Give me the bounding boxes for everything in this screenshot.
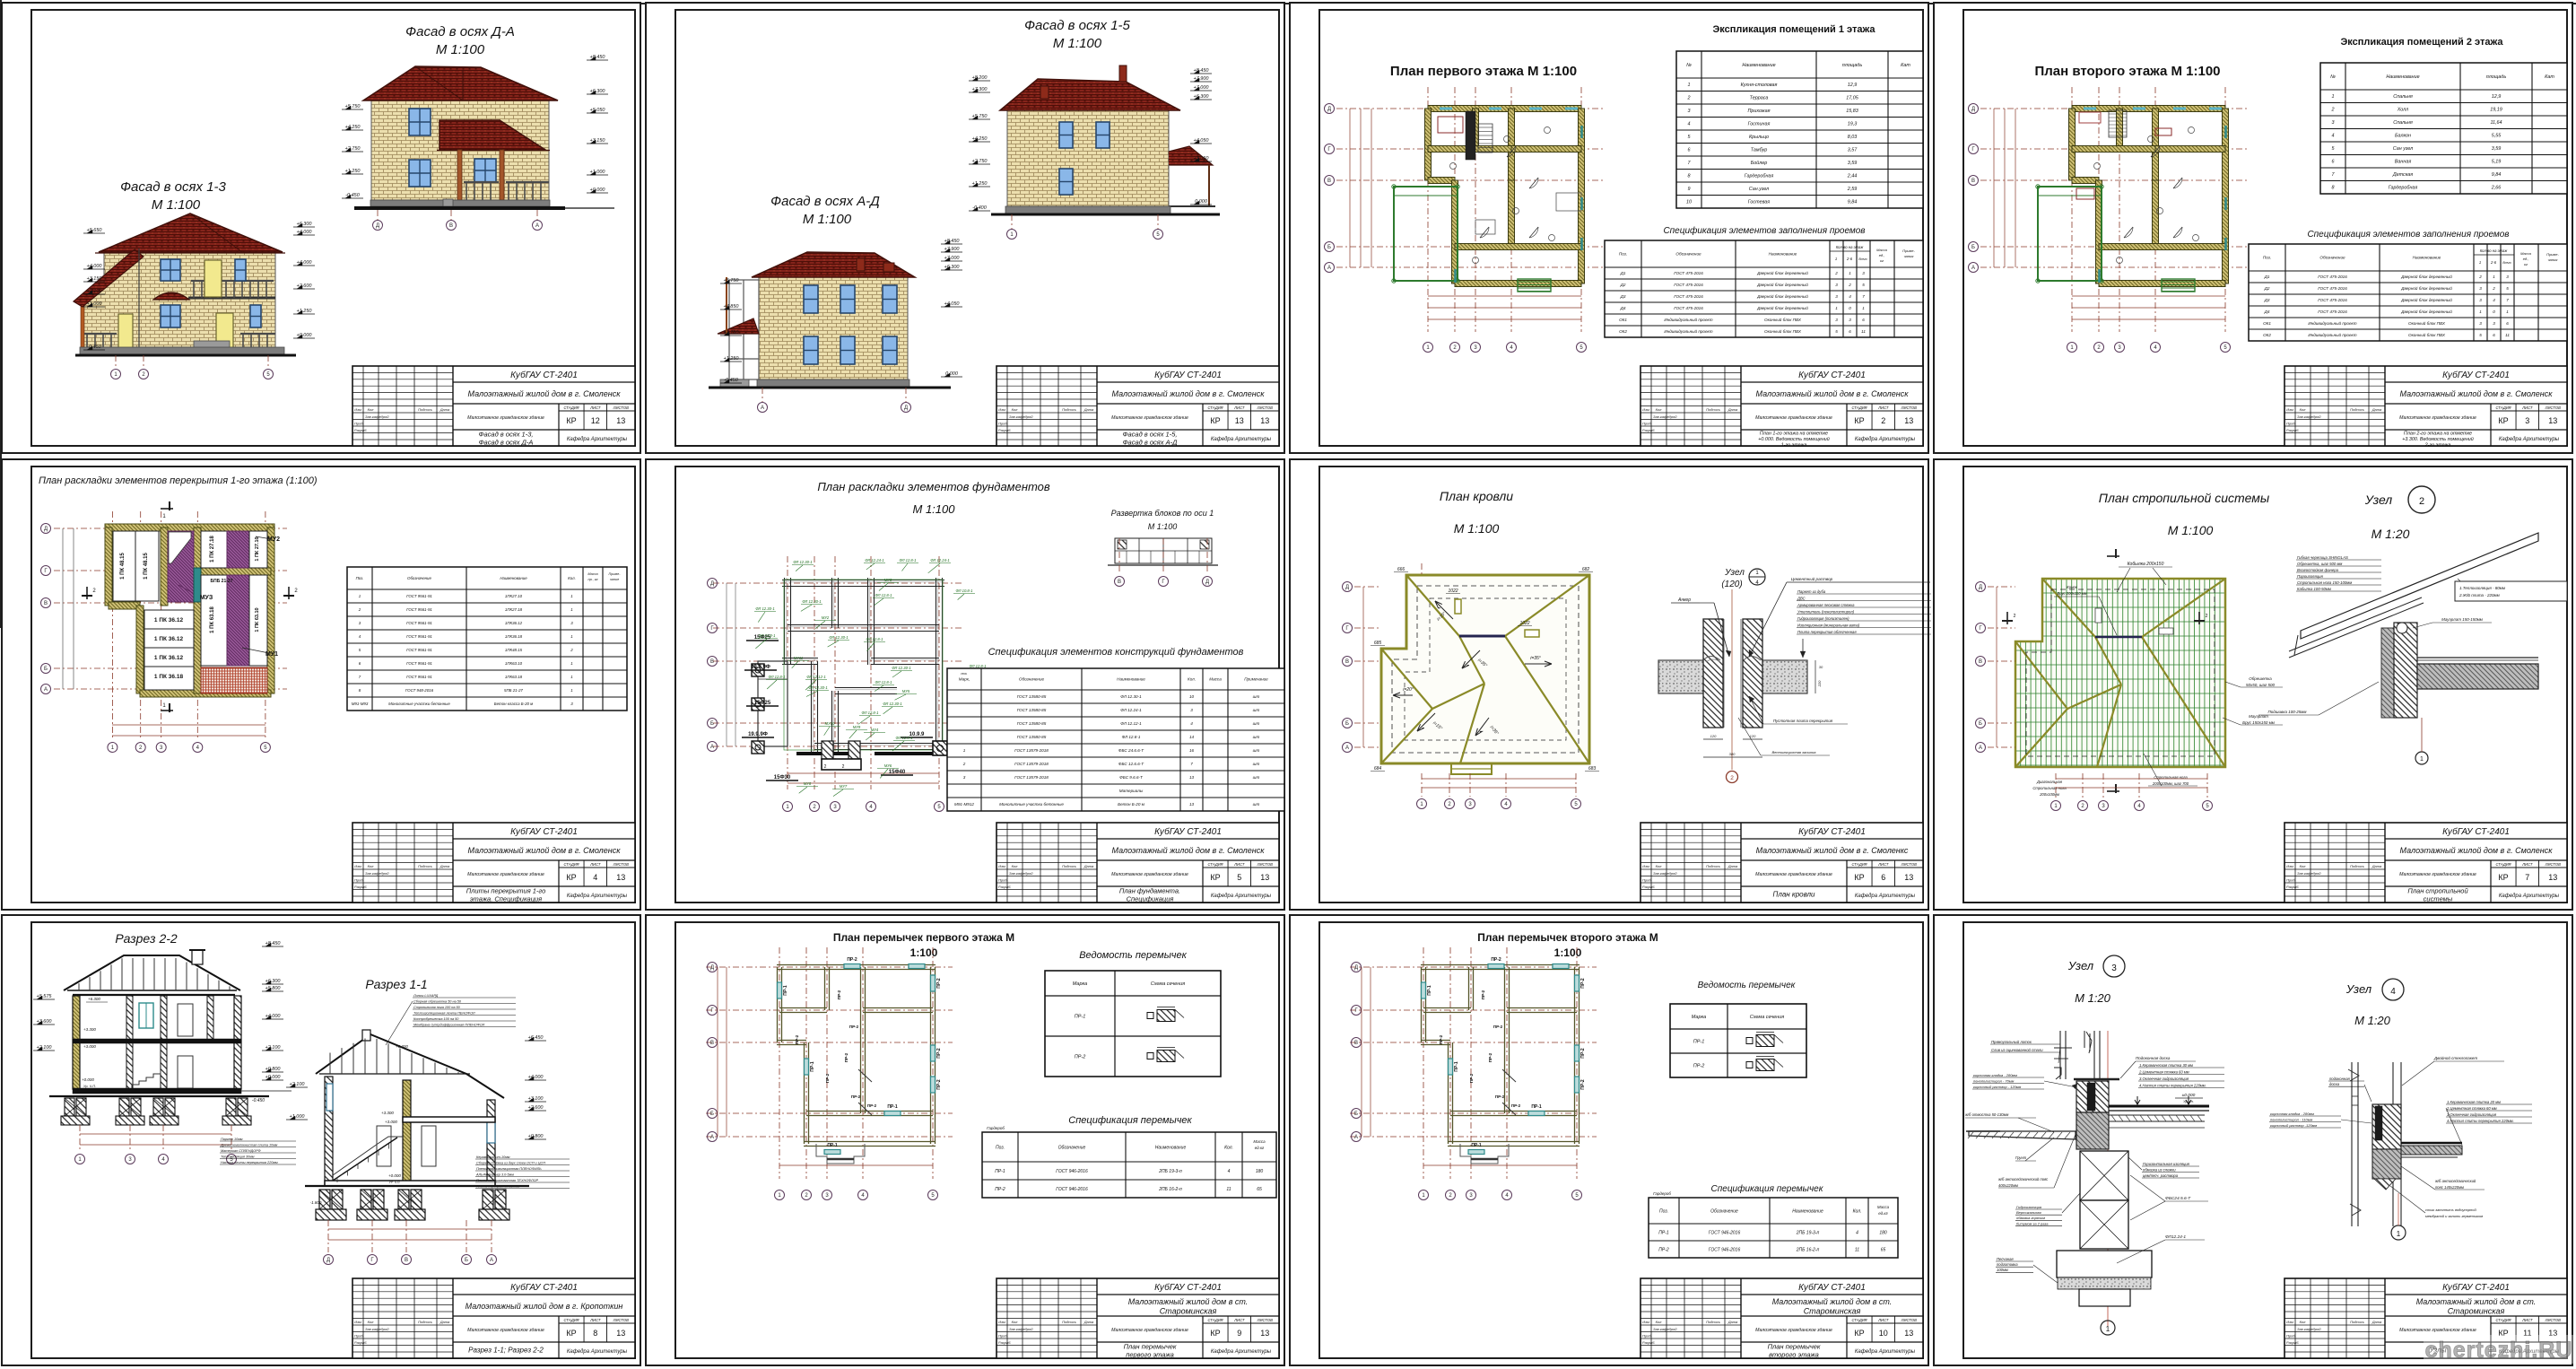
svg-text:7: 7 <box>1862 294 1865 299</box>
svg-text:2.Цементная стяжка 60 мм: 2.Цементная стяжка 60 мм <box>2138 1069 2189 1074</box>
svg-text:ГОСТ 9561-91: ГОСТ 9561-91 <box>406 661 432 666</box>
svg-text:19,3: 19,3 <box>1848 122 1858 127</box>
svg-text:Дата: Дата <box>1083 407 1094 412</box>
svg-text:План перемычек: План перемычек <box>1768 1343 1821 1351</box>
svg-text:Узел: Узел <box>2067 959 2094 972</box>
svg-text:СТАДИЯ: СТАДИЯ <box>2496 862 2511 867</box>
svg-text:5: 5 <box>1835 329 1838 334</box>
svg-text:Зав.кафедрой: Зав.кафедрой <box>365 414 389 419</box>
svg-text:Изм: Изм <box>2286 864 2293 868</box>
svg-text:Наименование: Наименование <box>1769 252 1797 257</box>
svg-text:МУ5: МУ5 <box>902 689 910 693</box>
svg-text:ПР-1: ПР-1 <box>1427 985 1432 996</box>
svg-text:3,57: 3,57 <box>1848 148 1858 153</box>
svg-text:Плита минераловатная ТЕХНОФЛОР: Плита минераловатная ТЕХНОФЛОР <box>476 1179 539 1182</box>
svg-text:В: В <box>710 659 714 665</box>
svg-text:Д2: Д2 <box>1620 283 1626 287</box>
svg-text:Индивидуальный проект: Индивидуальный проект <box>2308 320 2356 326</box>
svg-text:Подшивка 100-25мм: Подшивка 100-25мм <box>2268 710 2307 714</box>
svg-text:Б: Б <box>1971 245 1975 250</box>
svg-text:Оконный блок ПВХ: Оконный блок ПВХ <box>1764 328 1802 334</box>
svg-text:4: 4 <box>2390 987 2396 997</box>
svg-text:Зав.кафедрой: Зав.кафедрой <box>2297 414 2321 419</box>
svg-text:6: 6 <box>1688 148 1691 153</box>
svg-text:15,83: 15,83 <box>1846 109 1858 114</box>
svg-text:Спальня: Спальня <box>2393 120 2413 126</box>
svg-text:Кол: Кол <box>368 407 374 412</box>
svg-text:13: 13 <box>1904 1329 1913 1338</box>
svg-text:Малоэтажное гражданское здание: Малоэтажное гражданское здание <box>1755 872 1832 877</box>
svg-text:ФЛ 12.30-1: ФЛ 12.30-1 <box>892 666 910 670</box>
svg-text:Кол.: Кол. <box>568 576 576 580</box>
svg-text:1 ПК 63.10: 1 ПК 63.10 <box>255 607 260 632</box>
svg-text:ФЛ 12.8-1: ФЛ 12.8-1 <box>861 711 878 715</box>
svg-text:Наименование: Наименование <box>500 576 527 580</box>
svg-text:Обозначение: Обозначение <box>2319 256 2345 260</box>
svg-text:Обозначение: Обозначение <box>407 576 431 580</box>
svg-text:ФЛ 12.8-1: ФЛ 12.8-1 <box>758 633 775 638</box>
svg-text:Монолитные участки бетонные: Монолитные участки бетонные <box>999 802 1064 807</box>
svg-text:ФЛ 12.24-1: ФЛ 12.24-1 <box>865 558 883 562</box>
svg-text:Плита перекрытия облегченная: Плита перекрытия облегченная <box>1797 630 1857 634</box>
svg-text:Вентиляционная засыпка: Вентиляционная засыпка <box>1772 750 1817 754</box>
svg-text:СТАДИЯ: СТАДИЯ <box>564 862 579 867</box>
svg-text:Двойной стеклопакет: Двойной стеклопакет <box>2433 1055 2477 1060</box>
svg-text:ПР-1: ПР-1 <box>995 1169 1005 1174</box>
svg-text:4: 4 <box>1688 122 1691 127</box>
svg-text:ФБС 24.6.6-Т: ФБС 24.6.6-Т <box>1118 748 1144 753</box>
svg-text:13: 13 <box>1235 416 1244 425</box>
svg-text:Проб.: Проб. <box>354 878 364 883</box>
svg-text:Гостиная: Гостиная <box>1748 122 1771 127</box>
svg-text:№: № <box>1686 63 1692 68</box>
svg-text:МУ10: МУ10 <box>825 721 835 726</box>
svg-text:шт: шт <box>1253 802 1260 807</box>
svg-text:3: 3 <box>2506 275 2509 279</box>
svg-text:10: 10 <box>1686 200 1692 205</box>
svg-text:ПР-2: ПР-2 <box>1495 1094 1505 1099</box>
svg-text:Кол: Кол <box>2300 407 2306 412</box>
svg-text:11: 11 <box>1855 1247 1859 1252</box>
svg-text:7: 7 <box>1190 762 1193 766</box>
svg-text:1ПК63.10: 1ПК63.10 <box>505 661 523 666</box>
svg-text:ПР-1: ПР-1 <box>1658 1230 1669 1235</box>
svg-text:2-6: 2-6 <box>1846 257 1853 261</box>
svg-text:Спальня: Спальня <box>2393 94 2413 100</box>
svg-text:Дата: Дата <box>1727 864 1738 868</box>
svg-text:Марк,: Марк, <box>959 677 970 682</box>
svg-text:ФЛ 12.12-1: ФЛ 12.12-1 <box>1120 721 1142 726</box>
svg-text:Сборная обрешетка 50 на 50: Сборная обрешетка 50 на 50 <box>413 999 462 1003</box>
svg-text:683: 683 <box>1588 766 1597 772</box>
svg-text:Разраб.: Разраб. <box>998 885 1011 889</box>
svg-text:ФБС 12.6.6-Т: ФБС 12.6.6-Т <box>1118 762 1144 766</box>
svg-text:Проб.: Проб. <box>2286 1334 2296 1338</box>
svg-text:Дверной блок деревянный: Дверной блок деревянный <box>2400 309 2452 314</box>
svg-text:120: 120 <box>1710 734 1717 738</box>
svg-text:Узел: Узел <box>2345 982 2372 996</box>
svg-text:682: 682 <box>1582 567 1590 572</box>
svg-text:Малоэтажный жилой дом в г. Смо: Малоэтажный жилой дом в г. Смоленск <box>468 846 622 855</box>
svg-text:СТАДИЯ: СТАДИЯ <box>2496 1318 2511 1322</box>
svg-text:8: 8 <box>2332 186 2335 191</box>
svg-text:Малоэтажный жилой дом в г. Смо: Малоэтажный жилой дом в г. Смоленск <box>2400 846 2554 855</box>
svg-text:Дверной блок деревянный: Дверной блок деревянный <box>1756 270 1808 275</box>
svg-text:Ведомость перемычек: Ведомость перемычек <box>1079 950 1187 961</box>
svg-text:Вертикальная: Вертикальная <box>2016 1210 2042 1215</box>
svg-text:Мауэрлат 150-150мм: Мауэрлат 150-150мм <box>2441 617 2483 622</box>
svg-text:1: 1 <box>2479 310 2482 314</box>
svg-text:Староминская: Староминская <box>2448 1307 2505 1316</box>
svg-text:СТАДИЯ: СТАДИЯ <box>1852 862 1867 867</box>
svg-text:Б: Б <box>465 1258 468 1263</box>
svg-text:Узел: Узел <box>2364 493 2392 507</box>
svg-text:i=20°: i=20° <box>1403 687 1414 693</box>
svg-text:МУ6: МУ6 <box>884 763 892 768</box>
svg-text:шт: шт <box>1253 708 1260 712</box>
svg-text:ГОСТ 946-2016: ГОСТ 946-2016 <box>1709 1230 1741 1235</box>
svg-text:Кол: Кол <box>1656 864 1662 868</box>
svg-text:ед.,: ед., <box>1879 253 1885 257</box>
svg-text:Настил плиты перекрытия 220мм: Настил плиты перекрытия 220мм <box>221 1161 278 1164</box>
svg-text:СТАДИЯ: СТАДИЯ <box>564 1318 579 1322</box>
svg-text:1 ПК 36.12: 1 ПК 36.12 <box>154 655 184 661</box>
svg-text:Разраб.: Разраб. <box>354 885 367 889</box>
svg-text:В: В <box>1345 659 1349 665</box>
svg-text:ГОСТ 475-2016: ГОСТ 475-2016 <box>1674 294 1703 299</box>
svg-text:кирпичный раствор - 120мм: кирпичный раствор - 120мм <box>1973 1085 2022 1089</box>
svg-text:Подпись: Подпись <box>1062 407 1076 412</box>
svg-text:Разраб.: Разраб. <box>1642 428 1655 432</box>
svg-text:ФБС24.5.6-Т: ФБС24.5.6-Т <box>2165 1196 2191 1201</box>
svg-text:кг: кг <box>1880 258 1884 263</box>
svg-text:А: А <box>535 223 539 229</box>
svg-text:КубГАУ СТ-2401: КубГАУ СТ-2401 <box>510 370 578 380</box>
svg-text:+3.300: +3.300 <box>83 1027 96 1032</box>
svg-text:Дверной блок деревянный: Дверной блок деревянный <box>1756 305 1808 310</box>
svg-text:ПР-2: ПР-2 <box>936 1048 942 1059</box>
svg-text:Сан узел: Сан узел <box>2393 146 2413 152</box>
svg-text:Проб.: Проб. <box>354 1334 364 1338</box>
svg-text:Малоэтажный жилой дом в г. Смо: Малоэтажный жилой дом в г. Смоленск <box>2400 389 2554 398</box>
svg-text:Дата: Дата <box>439 407 450 412</box>
svg-text:МУ11: МУ11 <box>794 656 804 660</box>
svg-text:Кафедра Архитектуры: Кафедра Архитектуры <box>567 437 628 442</box>
svg-text:ЛИСТОВ: ЛИСТОВ <box>613 862 629 867</box>
svg-text:ЛИСТ: ЛИСТ <box>589 862 601 867</box>
svg-text:Изм: Изм <box>998 407 1005 412</box>
svg-text:ФЛ 12.30-1: ФЛ 12.30-1 <box>755 606 774 611</box>
svg-text:Масса: Масса <box>1876 248 1888 252</box>
svg-text:ЛИСТ: ЛИСТ <box>1233 1318 1245 1322</box>
svg-text:3.Оклеечная гидроизоляция: 3.Оклеечная гидроизоляция <box>2139 1077 2189 1081</box>
svg-text:Ведомость перемычек: Ведомость перемычек <box>1698 981 1797 990</box>
svg-text:План второго этажа М 1:100: План второго этажа М 1:100 <box>2034 64 2220 79</box>
svg-text:План 1-го этажа на отметке: План 1-го этажа на отметке <box>1760 432 1828 437</box>
svg-text:5: 5 <box>2506 286 2509 291</box>
svg-text:1: 1 <box>1835 306 1838 310</box>
svg-text:ПР-2: ПР-2 <box>1511 1103 1521 1108</box>
svg-text:1 ПК 27.10: 1 ПК 27.10 <box>255 536 260 561</box>
svg-text:Примечание: Примечание <box>1244 677 1268 682</box>
svg-text:5,55: 5,55 <box>2492 134 2502 139</box>
svg-text:5: 5 <box>2479 333 2482 337</box>
svg-text:2: 2 <box>842 764 845 770</box>
svg-text:Индивидуальный проект: Индивидуальный проект <box>1664 328 1712 334</box>
svg-text:1.Керамическая плитка 30 мм: 1.Керамическая плитка 30 мм <box>2139 1063 2193 1068</box>
svg-text:11: 11 <box>1226 1187 1231 1192</box>
svg-text:4: 4 <box>1190 721 1193 726</box>
svg-text:Малоэтажный жилой дом в г. Смо: Малоэтажный жилой дом в г. Смоленск <box>1112 389 1266 398</box>
svg-text:Древесноволокнистая плита 10мм: Древесноволокнистая плита 10мм <box>220 1143 278 1147</box>
svg-text:ФЛ 12.30-1: ФЛ 12.30-1 <box>1120 694 1142 699</box>
svg-text:СТАДИЯ: СТАДИЯ <box>1852 1318 1867 1322</box>
svg-text:КР: КР <box>1854 416 1864 425</box>
svg-text:ед.кг: ед.кг <box>1255 1146 1265 1150</box>
svg-text:ЛИСТ: ЛИСТ <box>1877 405 1889 410</box>
svg-text:Гардеробная: Гардеробная <box>1745 174 1774 179</box>
svg-text:Староминская: Староминская <box>1160 1307 1217 1316</box>
svg-text:Кат: Кат <box>1901 63 1910 68</box>
svg-text:Малоэтажный жилой дом в г. Кро: Малоэтажный жилой дом в г. Кропоткин <box>466 1302 623 1311</box>
svg-text:Кол: Кол <box>1656 1320 1662 1324</box>
svg-text:В: В <box>44 601 48 606</box>
svg-text:4: 4 <box>2332 134 2335 139</box>
svg-text:200х100мм, шаг 700: 200х100мм, шаг 700 <box>2152 781 2189 786</box>
svg-text:Приме-: Приме- <box>1902 249 1915 253</box>
svg-text:220: 220 <box>1817 680 1822 687</box>
svg-text:Изм: Изм <box>354 1320 361 1324</box>
svg-text:КР: КР <box>1210 1329 1220 1338</box>
svg-text:площадь: площадь <box>2486 74 2507 80</box>
svg-text:Оконный блок ПВХ: Оконный блок ПВХ <box>2408 320 2446 326</box>
svg-text:кирпичная кладка - 280мм: кирпичная кладка - 280мм <box>2270 1112 2314 1116</box>
svg-text:Подпись: Подпись <box>2350 407 2364 412</box>
svg-text:ОК1: ОК1 <box>2263 321 2271 326</box>
svg-text:+3.300. Ведомость помещений: +3.300. Ведомость помещений <box>2402 436 2474 442</box>
svg-text:Спецификация элементов констру: Спецификация элементов конструкций фунда… <box>988 647 1244 658</box>
svg-text:180: 180 <box>1256 1169 1264 1174</box>
svg-text:ЛИСТОВ: ЛИСТОВ <box>1901 1318 1917 1322</box>
svg-text:Малоэтажное гражданское здание: Малоэтажное гражданское здание <box>467 1328 544 1333</box>
svg-text:1 ПК 48.15: 1 ПК 48.15 <box>144 553 149 580</box>
svg-text:Подпись: Подпись <box>1706 864 1720 868</box>
svg-text:Дата: Дата <box>439 864 450 868</box>
svg-text:Кол: Кол <box>1656 407 1662 412</box>
svg-text:шт: шт <box>1253 721 1260 726</box>
svg-text:120: 120 <box>1750 734 1756 738</box>
svg-text:Д: Д <box>1345 585 1349 590</box>
svg-text:2: 2 <box>2331 108 2335 113</box>
svg-text:684: 684 <box>1374 766 1382 772</box>
svg-text:УР. Ч.П.: УР. Ч.П. <box>389 1181 401 1184</box>
svg-text:ЛИСТ: ЛИСТ <box>1877 1318 1889 1322</box>
svg-text:МУ3: МУ3 <box>884 578 892 582</box>
svg-text:ГОСТ 13579-2018: ГОСТ 13579-2018 <box>1014 748 1049 753</box>
svg-text:Керамогранит-10мм: Керамогранит-10мм <box>476 1155 510 1159</box>
svg-text:План кровли: План кровли <box>1440 489 1513 503</box>
svg-text:Спецификация элементов заполне: Спецификация элементов заполнения проемо… <box>1663 225 1865 236</box>
svg-text:chertezhi.RU: chertezhi.RU <box>2425 1338 2573 1363</box>
svg-text:ЛИСТ: ЛИСТ <box>2521 862 2533 867</box>
svg-text:9: 9 <box>1688 187 1691 192</box>
svg-text:100мм: 100мм <box>1997 1268 2008 1272</box>
svg-text:пояс 140х220мм: пояс 140х220мм <box>2435 1185 2464 1190</box>
svg-text:ЛИСТ: ЛИСТ <box>1233 405 1245 410</box>
svg-text:ПР-2: ПР-2 <box>1580 1048 1586 1059</box>
svg-text:50х50, шаг 500: 50х50, шаг 500 <box>2246 683 2275 687</box>
svg-text:2.Ж/Б плита - 220мм: 2.Ж/Б плита - 220мм <box>2459 593 2500 597</box>
svg-text:Влагостойкая фанера: Влагостойкая фанера <box>2297 568 2339 572</box>
svg-text:Кобылка 200х150: Кобылка 200х150 <box>2128 562 2164 567</box>
svg-text:Прямоугольный лоток: Прямоугольный лоток <box>1991 1040 2032 1044</box>
svg-text:Кафедра Архитектуры: Кафедра Архитектуры <box>1211 1349 1272 1355</box>
svg-text:Подпись: Подпись <box>418 407 432 412</box>
svg-text:План раскладки элементов перек: План раскладки элементов перекрытия 1-го… <box>39 475 318 486</box>
svg-text:ФЛ12.24-1: ФЛ12.24-1 <box>2165 1234 2186 1240</box>
svg-text:обмазка из слежки: обмазка из слежки <box>2143 1167 2176 1172</box>
svg-text:Тамбур: Тамбур <box>1751 148 1767 153</box>
svg-text:ПР-2: ПР-2 <box>1075 1055 1086 1060</box>
svg-text:2ПБ 16-2-п: 2ПБ 16-2-п <box>1796 1247 1820 1252</box>
svg-text:i=35°: i=35° <box>1530 656 1541 661</box>
svg-text:Узел: Узел <box>1724 568 1745 578</box>
svg-text:М 1:20: М 1:20 <box>2075 991 2111 1005</box>
svg-text:1: 1 <box>2397 1230 2401 1238</box>
svg-text:Изм: Изм <box>354 864 361 868</box>
svg-text:Малоэтажный жилой дом в ст.: Малоэтажный жилой дом в ст. <box>2416 1297 2537 1306</box>
svg-text:1: 1 <box>1835 257 1837 261</box>
svg-text:ФЛ 12.12-1: ФЛ 12.12-1 <box>806 675 825 679</box>
svg-text:Малоэтажное гражданское здание: Малоэтажное гражданское здание <box>2399 1328 2476 1333</box>
svg-text:План фундамента.: План фундамента. <box>1119 887 1180 895</box>
svg-text:Фасад в осях 1-3,: Фасад в осях 1-3, <box>479 431 534 439</box>
svg-text:Б: Б <box>1979 721 1982 727</box>
svg-text:кг: кг <box>2524 262 2528 266</box>
svg-text:КР: КР <box>1210 416 1220 425</box>
svg-text:2: 2 <box>1834 271 1838 275</box>
svg-text:М91-М912: М91-М912 <box>954 802 974 807</box>
svg-text:ЛИСТОВ: ЛИСТОВ <box>613 405 629 410</box>
svg-text:Дверной блок деревянный: Дверной блок деревянный <box>2400 297 2452 302</box>
svg-text:Изм: Изм <box>1642 1320 1649 1324</box>
svg-text:ГОСТ 9561-91: ГОСТ 9561-91 <box>406 675 432 679</box>
svg-text:9: 9 <box>1237 1329 1241 1338</box>
svg-text:СТАДИЯ: СТАДИЯ <box>1208 1318 1223 1322</box>
svg-text:МУ1: МУ1 <box>265 651 278 658</box>
svg-text:6: 6 <box>1881 873 1885 882</box>
svg-text:4: 4 <box>1856 1230 1858 1235</box>
svg-text:Приме-: Приме- <box>2546 252 2559 257</box>
svg-text:11,64: 11,64 <box>2490 120 2502 126</box>
svg-text:Сборная стяжка из двух слоев О: Сборная стяжка из двух слоев ОСП и ЦСП <box>476 1161 545 1164</box>
svg-text:Фасад в осях Д-А: Фасад в осях Д-А <box>405 24 515 39</box>
svg-text:2ПБ 19-3-п: 2ПБ 19-3-п <box>1158 1169 1182 1174</box>
svg-text:Гостевая: Гостевая <box>1748 200 1771 205</box>
svg-text:А: А <box>1327 266 1331 271</box>
svg-text:Слив из оцинкованной стали: Слив из оцинкованной стали <box>1991 1048 2043 1052</box>
svg-text:Марка: Марка <box>1073 981 1087 987</box>
svg-text:Зав.кафедрой: Зав.кафедрой <box>2297 871 2321 876</box>
svg-text:Обозначение: Обозначение <box>1058 1145 1086 1150</box>
svg-text:План раскладки элементов фунда: План раскладки элементов фундаментов <box>817 480 1050 493</box>
svg-text:этажа. Спецификация: этажа. Спецификация <box>470 895 542 903</box>
svg-text:М91-М93: М91-М93 <box>352 702 369 706</box>
svg-text:КР: КР <box>1854 873 1864 882</box>
svg-text:В: В <box>449 223 453 229</box>
svg-text:Подпись: Подпись <box>418 1320 432 1324</box>
svg-text:1ПК36.18: 1ПК36.18 <box>505 634 523 639</box>
svg-text:Д: Д <box>326 1258 330 1263</box>
svg-text:6: 6 <box>2332 160 2335 165</box>
svg-text:Б: Б <box>1354 1112 1358 1117</box>
svg-text:9,84: 9,84 <box>2492 172 2502 178</box>
svg-text:Подпись: Подпись <box>2350 1320 2364 1324</box>
svg-text:11: 11 <box>2505 333 2510 337</box>
svg-text:Фасад в осях А-Д: Фасад в осях А-Д <box>1123 439 1179 447</box>
svg-text:ГОСТ 9561-91: ГОСТ 9561-91 <box>406 621 432 625</box>
svg-text:Дата: Дата <box>1083 864 1094 868</box>
svg-text:битумом за 2 раза: битумом за 2 раза <box>2016 1221 2049 1225</box>
svg-text:Дверной блок деревянный: Дверной блок деревянный <box>1756 282 1808 287</box>
svg-text:Малоэтажный жилой дом в г. Смо: Малоэтажный жилой дом в г. Смоленск <box>468 389 622 398</box>
svg-text:Грунт: Грунт <box>2015 1155 2027 1160</box>
svg-text:15Ф30: 15Ф30 <box>774 775 791 780</box>
svg-text:13: 13 <box>2548 416 2557 425</box>
svg-text:План стропильной: План стропильной <box>2407 887 2468 895</box>
svg-text:Подоконная доска: Подоконная доска <box>2136 1056 2171 1060</box>
svg-text:Кол: Кол <box>2300 1320 2306 1324</box>
svg-text:Подпись: Подпись <box>1062 1320 1076 1324</box>
svg-text:2: 2 <box>2492 286 2495 291</box>
svg-text:ЛИСТОВ: ЛИСТОВ <box>1257 1318 1273 1322</box>
svg-text:Разраб.: Разраб. <box>354 428 367 432</box>
svg-text:15Ф40: 15Ф40 <box>889 770 906 775</box>
svg-text:ПР-2: ПР-2 <box>1693 1064 1705 1069</box>
svg-text:ж/б антисейсмический пояс: ж/б антисейсмический пояс <box>1997 1177 2049 1182</box>
svg-text:2: 2 <box>2014 614 2016 619</box>
svg-text:5,19: 5,19 <box>2492 160 2502 165</box>
svg-text:Наименование: Наименование <box>1742 63 1775 68</box>
svg-text:2,59: 2,59 <box>1847 187 1858 192</box>
svg-text:6: 6 <box>1849 329 1851 334</box>
svg-text:Д2: Д2 <box>2264 286 2270 291</box>
svg-text:Д: Д <box>376 223 379 229</box>
svg-text:5: 5 <box>1862 283 1865 287</box>
svg-text:ГОСТ 13579-2018: ГОСТ 13579-2018 <box>1014 762 1049 766</box>
svg-text:СТАДИЯ: СТАДИЯ <box>2496 405 2511 410</box>
svg-text:1ПК27.10: 1ПК27.10 <box>505 594 523 598</box>
svg-text:13: 13 <box>1260 416 1269 425</box>
svg-text:ГОСТ 13580-85: ГОСТ 13580-85 <box>1017 694 1047 699</box>
svg-text:В: В <box>1118 580 1121 585</box>
svg-text:Стропильная нога 100 на 50: Стропильная нога 100 на 50 <box>413 1006 461 1009</box>
svg-text:ПР-2: ПР-2 <box>837 990 841 999</box>
svg-text:Малоэтажное гражданское здание: Малоэтажное гражданское здание <box>467 415 544 421</box>
svg-text:КР: КР <box>2498 416 2508 425</box>
svg-text:Дверной блок деревянный: Дверной блок деревянный <box>2400 285 2452 291</box>
svg-text:Изм: Изм <box>2286 407 2293 412</box>
svg-text:Разраб.: Разраб. <box>354 1340 367 1345</box>
svg-text:Малоэтажное гражданское здание: Малоэтажное гражданское здание <box>2399 872 2476 877</box>
svg-text:ЛИСТ: ЛИСТ <box>1233 862 1245 867</box>
svg-text:Теплоизоляционная лента ПЕНОФО: Теплоизоляционная лента ПЕНОФОЛ <box>413 1011 475 1015</box>
svg-text:Кол.: Кол. <box>1853 1208 1862 1214</box>
svg-text:Ур.ч.п.: Ур.ч.п. <box>2183 1100 2194 1103</box>
svg-text:Изм: Изм <box>1642 407 1649 412</box>
svg-text:План перемычек: План перемычек <box>1124 1343 1177 1351</box>
svg-text:4: 4 <box>1228 1169 1231 1174</box>
